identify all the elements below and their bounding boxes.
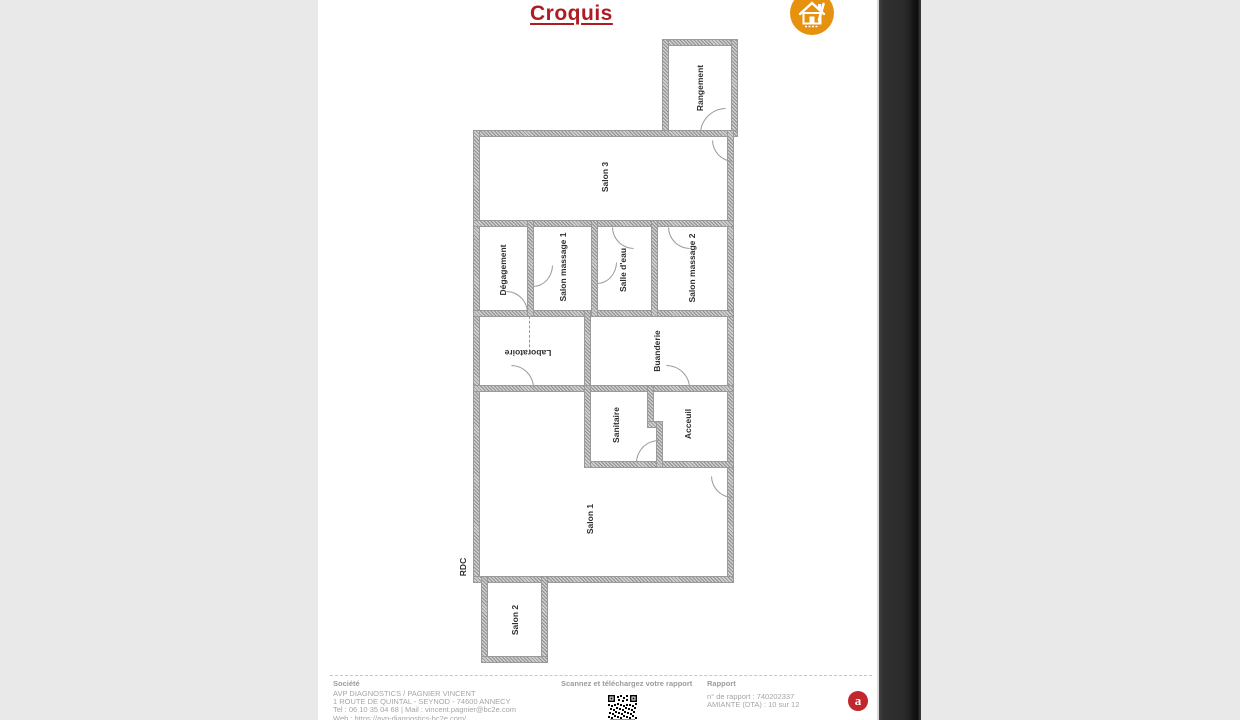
wall — [732, 40, 737, 136]
door-arc — [612, 227, 634, 249]
door-arc — [712, 140, 734, 162]
door-arc — [506, 291, 528, 313]
footer-company-details: AVP DIAGNOSTICS / PAGNIER VINCENT 1 ROUT… — [333, 690, 516, 720]
report-amiante: AMIANTE (DTA) : 10 sur 12 — [707, 701, 799, 709]
door-arc — [597, 262, 617, 284]
wall — [542, 577, 547, 662]
room-label-degagement: Dégagement — [498, 244, 508, 295]
room-label-salon-3: Salon 3 — [600, 162, 610, 192]
wall — [474, 221, 733, 226]
wall — [652, 221, 657, 316]
door-arc — [700, 108, 726, 134]
footer-company-heading: Société — [333, 679, 360, 688]
room-label-salon-2: Salon 2 — [510, 605, 520, 635]
wall — [648, 386, 653, 426]
wall — [474, 131, 479, 582]
company-web: Web : https://avp-diagnostics-bc2e.com/ — [333, 715, 516, 720]
room-label-rangement: Rangement — [695, 65, 705, 111]
floor-plan: Rangement Salon 3 Dégagement Salon massa… — [318, 0, 877, 720]
door-arc — [533, 265, 553, 287]
door-arc — [636, 440, 659, 463]
wall — [728, 131, 733, 582]
room-label-acceuil: Acceuil — [683, 409, 693, 439]
wall — [482, 657, 547, 662]
document-page: Croquis — [318, 0, 877, 720]
room-label-laboratoire: Laboratoire — [505, 348, 552, 358]
room-label-salle-deau: Salle d'eau — [618, 248, 628, 292]
door-arc — [511, 365, 534, 388]
qr-code — [608, 695, 637, 720]
floor-level-label: RDC — [458, 558, 468, 576]
room-label-salon-massage-2: Salon massage 2 — [687, 234, 697, 303]
wall — [663, 40, 737, 45]
room-label-buanderie: Buanderie — [652, 330, 662, 372]
wall — [474, 577, 733, 582]
wall — [482, 577, 487, 662]
viewer-screen: Croquis — [0, 0, 1240, 720]
footer-scan-heading: Scannez et téléchargez votre rapport — [561, 679, 692, 688]
footer-divider — [330, 675, 872, 676]
wall — [663, 40, 668, 136]
footer-report-details: n° de rapport : 740202337 AMIANTE (DTA) … — [707, 693, 799, 709]
room-label-sanitaire: Sanitaire — [611, 407, 621, 443]
door-arc — [666, 365, 690, 388]
footer-report-heading: Rapport — [707, 679, 736, 688]
wall — [585, 386, 590, 467]
report-badge: a — [848, 691, 868, 711]
room-label-salon-massage-1: Salon massage 1 — [558, 233, 568, 302]
door-arc — [711, 476, 733, 498]
wall — [585, 311, 590, 391]
dark-side-panel — [877, 0, 921, 720]
wall — [474, 131, 737, 136]
room-label-salon-1: Salon 1 — [585, 504, 595, 534]
dashed-partition — [529, 316, 530, 352]
